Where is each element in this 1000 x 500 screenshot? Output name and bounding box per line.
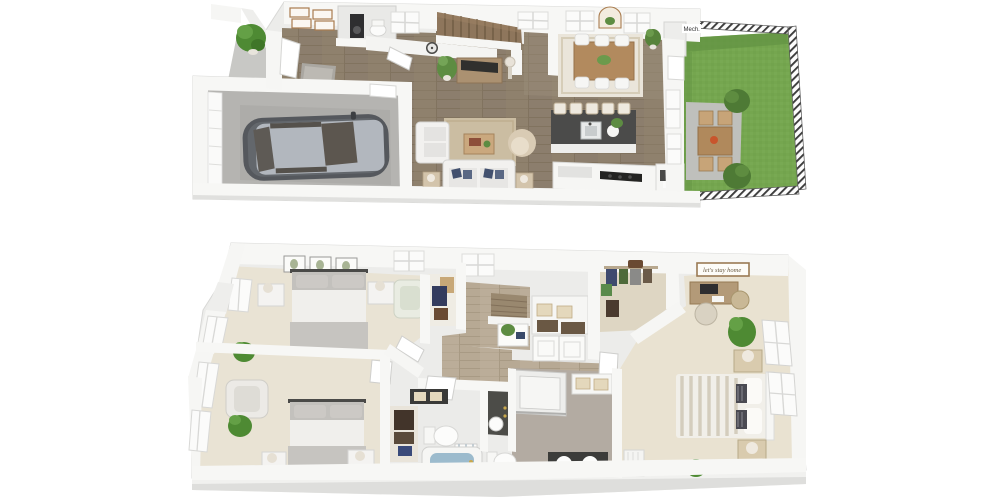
svg-text:let's stay home: let's stay home xyxy=(703,267,741,274)
svg-text:Mech.: Mech. xyxy=(684,27,701,33)
